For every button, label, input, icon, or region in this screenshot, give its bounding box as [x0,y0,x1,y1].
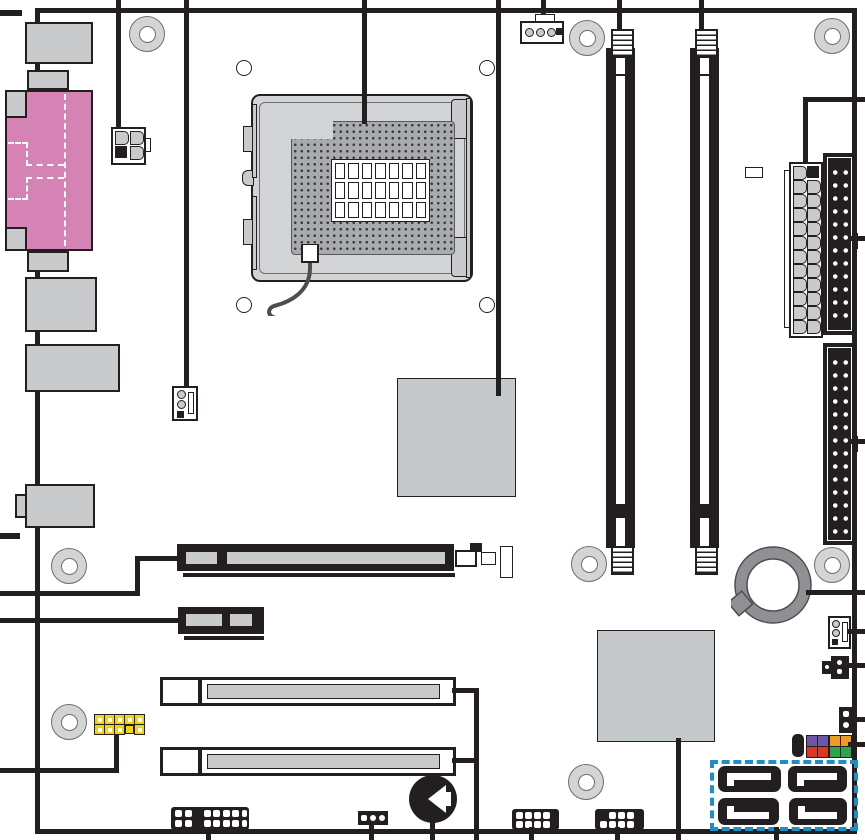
leader-line [430,819,435,840]
leader-line [529,827,534,840]
pin [807,166,819,178]
pin [793,166,807,180]
panel-dashed-outline [8,142,28,144]
panel-dashed-outline [8,198,28,200]
pin [793,180,807,194]
sata-connector-3 [718,798,779,825]
pin [177,390,186,399]
leader-line [0,10,22,16]
connector-pins [829,164,850,324]
battery [731,543,815,627]
dimm-channel [700,76,709,504]
socket-corner-hole [236,60,252,76]
dimm-latch-top [611,29,634,58]
leader-line [848,629,865,634]
dimm-latch-neck [614,516,627,548]
socket-corner-hole [479,297,495,313]
front-panel-usb-header-yellow [93,713,146,735]
leader-line [0,533,20,539]
leader-line [184,0,189,388]
pin [177,400,186,409]
pin [817,746,829,758]
pin [793,208,807,222]
hole-center [824,28,841,45]
leader-line [0,618,180,623]
leader-line [774,827,779,840]
hole-center [61,558,78,575]
front-panel-header-colored [792,733,852,759]
smd-marker [745,167,763,178]
pin [832,629,840,637]
pin [793,222,807,236]
leader-line [806,590,865,595]
latch-detail [481,552,496,565]
dimm-latch-bottom [695,546,718,575]
pin [807,306,821,320]
sata-connector-1 [718,766,781,792]
pin [832,620,840,628]
slot-key-divider [198,749,202,774]
pin [832,639,838,645]
pin [807,264,821,278]
leader-line [474,688,479,840]
leader-line [135,556,180,561]
mounting-hole [571,546,607,582]
leader-line [676,738,681,840]
mounting-hole [568,764,604,800]
leader-line [848,439,865,444]
pin [793,250,807,264]
pin [793,264,807,278]
pin [807,194,821,208]
slot-shadow [183,573,455,577]
bottom-header-2x5-a [512,809,559,830]
hole-center [579,30,596,47]
mounting-hole [569,20,605,56]
dimm-latch-bottom [611,546,634,575]
pin [525,28,534,37]
leader-line [452,688,478,693]
back-panel-usb-block [25,277,97,332]
mounting-hole [51,548,87,584]
leader-line [362,0,367,124]
slot-contact-strip [226,551,446,565]
hole-center [139,26,156,43]
latch-detail [470,543,482,552]
connector-pins [829,354,850,536]
pin [793,320,807,334]
sata-connector-2 [788,766,847,792]
leader-line [850,717,865,722]
pin [130,146,144,160]
speaker-icon [408,774,458,824]
mounting-hole [129,16,165,52]
mounting-hole [51,704,87,740]
leader-line [369,823,374,840]
dimm-channel [616,76,625,504]
leader-line [114,734,119,773]
pin [807,208,821,222]
slot-contact-strip [207,754,440,769]
slot-contact-strip [185,551,218,565]
pin [793,292,807,306]
panel-dashed-outline [26,164,64,166]
leader-line [803,97,808,163]
hole-center [581,556,598,573]
pin [793,194,807,208]
pin [130,131,144,145]
leader-line [0,768,119,773]
motherboard-diagram [0,0,865,840]
header-key-tab [188,392,194,414]
pin [177,411,184,418]
leader-line [135,556,140,596]
leader-line [206,827,211,840]
panel-dashed-outline [26,142,28,166]
leader-line [615,827,620,840]
socket-left-rail [252,104,257,178]
slot-contact-strip [185,613,223,627]
ich-chip [597,630,715,742]
pin [536,28,545,37]
socket-center-pads [331,159,430,222]
panel-dashed-outline [26,177,64,179]
leader-line [848,742,865,747]
panel-dashed-outline [64,94,66,246]
pin [840,746,852,758]
pin [792,734,804,757]
latch-detail [500,546,513,578]
pin [556,28,563,35]
panel-corner-tab [5,90,27,118]
socket-corner-hole [236,297,252,313]
leader-line [541,0,546,15]
socket-lever [262,244,372,316]
sata-connector-4 [789,798,847,825]
power-connector-tab [145,138,151,152]
leader-line [452,758,478,763]
leader-line [803,97,865,102]
back-panel-connector [27,251,69,272]
pcie-retention-latch [455,550,477,567]
leader-line [848,236,865,241]
pin [115,131,129,145]
leader-line [116,0,121,127]
pin [793,278,807,292]
dimm-latch-top [695,29,718,58]
pin [807,250,821,264]
pin [547,28,556,37]
dimm-latch-neck [698,516,711,548]
back-panel-lan-block [25,344,120,392]
socket-left-rail [252,196,257,270]
panel-corner-tab [5,227,27,251]
pin [807,180,821,194]
pin [115,146,127,158]
board-edge-top [35,8,857,13]
slot-shadow [184,636,264,640]
hole-center [824,557,841,574]
leader-line [617,0,622,30]
leader-line [846,663,865,668]
pin [793,236,807,250]
leader-line [0,591,140,596]
pin [807,292,821,306]
slot-contact-strip [207,684,440,699]
pin [807,320,821,334]
slot-key-divider [198,679,202,704]
pin [807,222,821,236]
hole-center [578,774,595,791]
back-panel-connector [27,70,69,90]
socket-right-rail [466,98,471,278]
socket-corner-hole [479,60,495,76]
mounting-hole [814,547,850,583]
pin [807,278,821,292]
pin [807,236,821,250]
panel-dashed-outline [26,177,28,200]
mounting-hole [814,18,850,54]
leader-line [699,0,704,30]
leader-line [496,0,501,396]
slot-contact-strip [229,613,253,627]
back-panel-ps2-block [25,22,93,64]
pin [793,306,807,320]
audio-jack-block [25,484,95,528]
hole-center [61,714,78,731]
